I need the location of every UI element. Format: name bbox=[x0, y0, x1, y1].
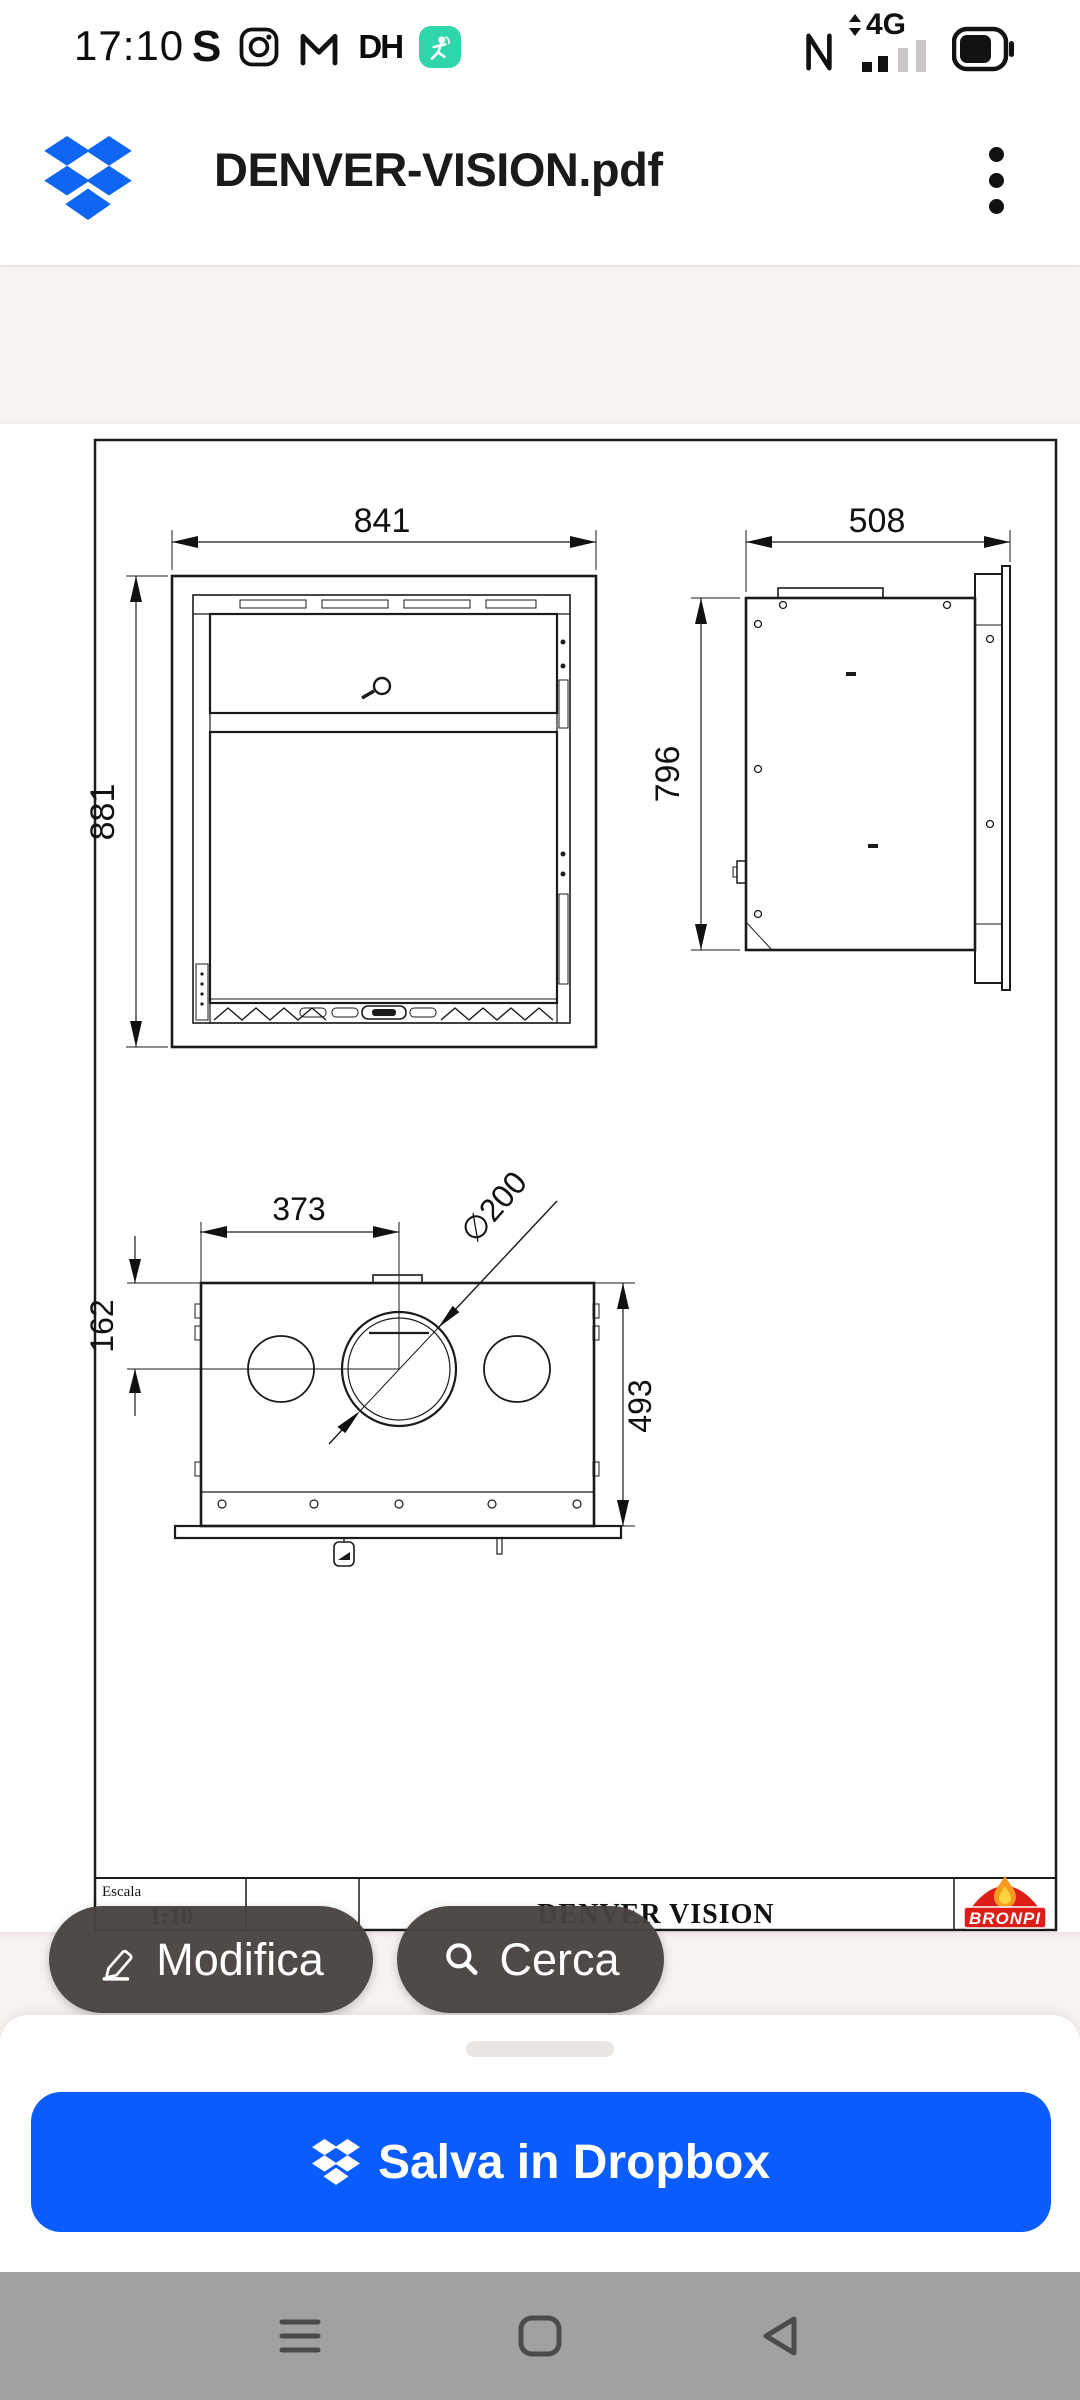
app-bar: DENVER-VISION.pdf bbox=[0, 92, 1080, 264]
gmail-icon bbox=[297, 27, 341, 67]
dim-side-width: 508 bbox=[849, 502, 906, 540]
technical-drawing: 841 881 bbox=[0, 424, 1080, 1932]
overflow-dot bbox=[989, 173, 1004, 188]
battery-icon bbox=[952, 26, 1014, 72]
side-view bbox=[691, 530, 1010, 990]
back-icon bbox=[758, 2314, 802, 2358]
search-label: Cerca bbox=[499, 1934, 619, 1986]
edit-button[interactable]: Modifica bbox=[49, 1906, 373, 2013]
notification-icons: S DH bbox=[192, 24, 461, 70]
search-icon bbox=[441, 1939, 483, 1981]
bottom-sheet: Salva in Dropbox bbox=[0, 2015, 1080, 2272]
dropbox-glyph-icon bbox=[312, 2139, 360, 2185]
scale-label: Escala bbox=[102, 1884, 141, 1900]
phone-screen: 17:10 S DH bbox=[0, 0, 1080, 2400]
save-label: Salva in Dropbox bbox=[378, 2135, 770, 2190]
dropbox-logo bbox=[44, 136, 132, 220]
save-to-dropbox-button[interactable]: Salva in Dropbox bbox=[31, 2092, 1051, 2232]
dim-plan-offset-x: 373 bbox=[272, 1191, 325, 1227]
file-title: DENVER-VISION.pdf bbox=[214, 142, 662, 197]
dh-app-icon: DH bbox=[358, 28, 402, 66]
data-arrows-icon bbox=[848, 13, 862, 37]
dim-front-width: 841 bbox=[354, 502, 411, 540]
status-time: 17:10 bbox=[74, 22, 184, 70]
home-button[interactable] bbox=[511, 2313, 569, 2359]
pdf-page[interactable]: 841 881 bbox=[0, 424, 1080, 1932]
back-button[interactable] bbox=[752, 2313, 808, 2359]
signal-bars-icon bbox=[862, 40, 938, 72]
instagram-icon bbox=[238, 26, 280, 68]
network-type: 4G bbox=[866, 10, 906, 40]
dim-plan-diameter: ∅200 bbox=[453, 1164, 533, 1249]
dim-plan-depth: 493 bbox=[622, 1379, 658, 1432]
s-app-icon: S bbox=[192, 27, 221, 67]
dim-front-height: 881 bbox=[84, 784, 122, 841]
sheet-handle[interactable] bbox=[466, 2041, 614, 2057]
overflow-dot bbox=[989, 147, 1004, 162]
home-icon bbox=[517, 2314, 563, 2358]
fitness-app-icon bbox=[419, 26, 461, 68]
overflow-menu-button[interactable] bbox=[968, 128, 1024, 232]
plan-view bbox=[127, 1201, 635, 1566]
nfc-icon bbox=[804, 32, 834, 72]
top-white-block: 17:10 S DH bbox=[0, 0, 1080, 266]
network-indicator: 4G bbox=[848, 10, 938, 72]
system-status-icons: 4G bbox=[804, 20, 1014, 72]
dim-side-height: 796 bbox=[649, 746, 687, 803]
brand-name: BRONPI bbox=[969, 1909, 1041, 1928]
recents-button[interactable] bbox=[272, 2313, 328, 2359]
dim-plan-offset-y: 162 bbox=[84, 1299, 120, 1352]
pencil-icon bbox=[98, 1939, 140, 1981]
overflow-dot bbox=[989, 199, 1004, 214]
search-button[interactable]: Cerca bbox=[397, 1906, 664, 2013]
recents-icon bbox=[278, 2314, 322, 2358]
nav-bar bbox=[0, 2272, 1080, 2400]
edit-label: Modifica bbox=[156, 1934, 324, 1986]
status-bar: 17:10 S DH bbox=[0, 0, 1080, 92]
front-view bbox=[126, 530, 596, 1047]
bronpi-logo: BRONPI bbox=[964, 1876, 1046, 1928]
